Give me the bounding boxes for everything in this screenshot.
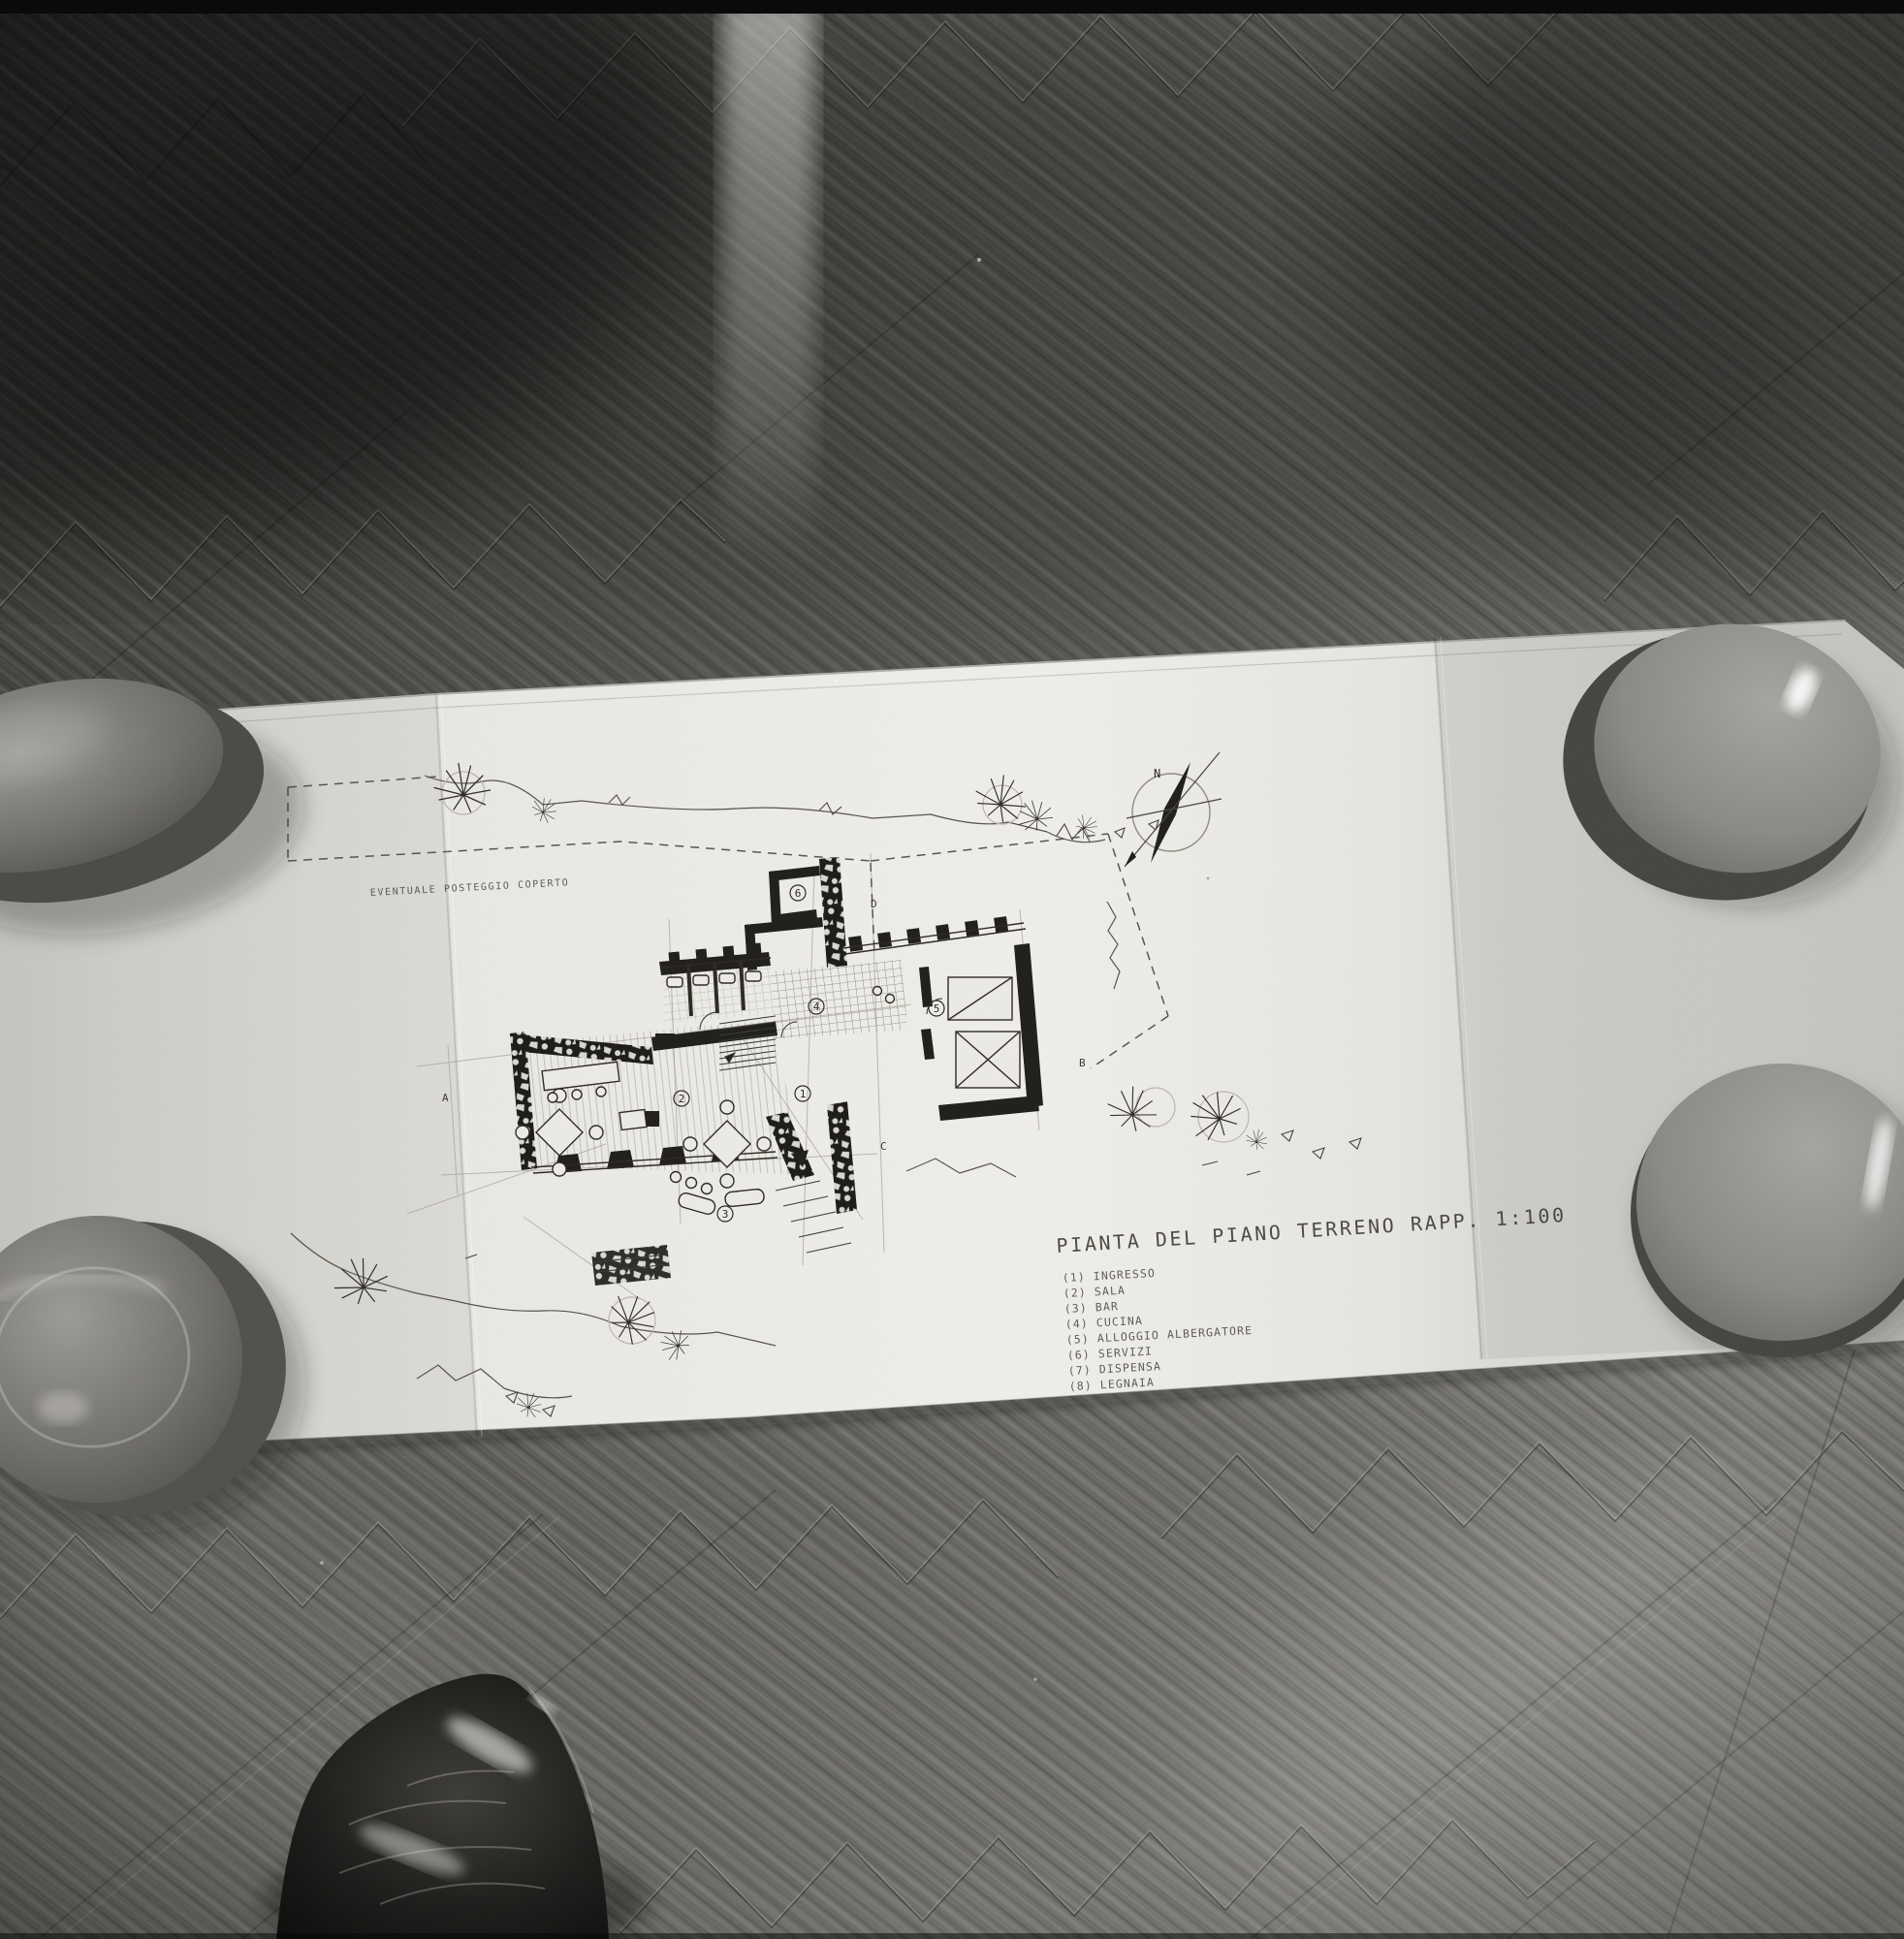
- film-grain: [0, 0, 1904, 1939]
- film-border-bottom: [0, 1933, 1904, 1939]
- film-border-top: [0, 0, 1904, 14]
- photo-canvas: 1 2 3 4 5 6 A B C D N EVENTUALE POSTEGGI…: [0, 0, 1904, 1939]
